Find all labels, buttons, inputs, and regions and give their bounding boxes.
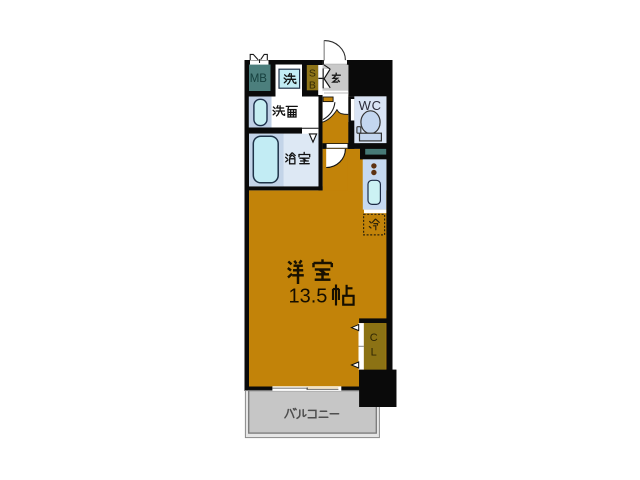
svg-text:S: S	[309, 67, 316, 79]
svg-text:L: L	[371, 346, 377, 358]
svg-text:B: B	[309, 80, 316, 92]
svg-text:13.5: 13.5	[289, 286, 328, 308]
svg-text:MB: MB	[250, 73, 268, 85]
svg-text:C: C	[370, 332, 378, 344]
